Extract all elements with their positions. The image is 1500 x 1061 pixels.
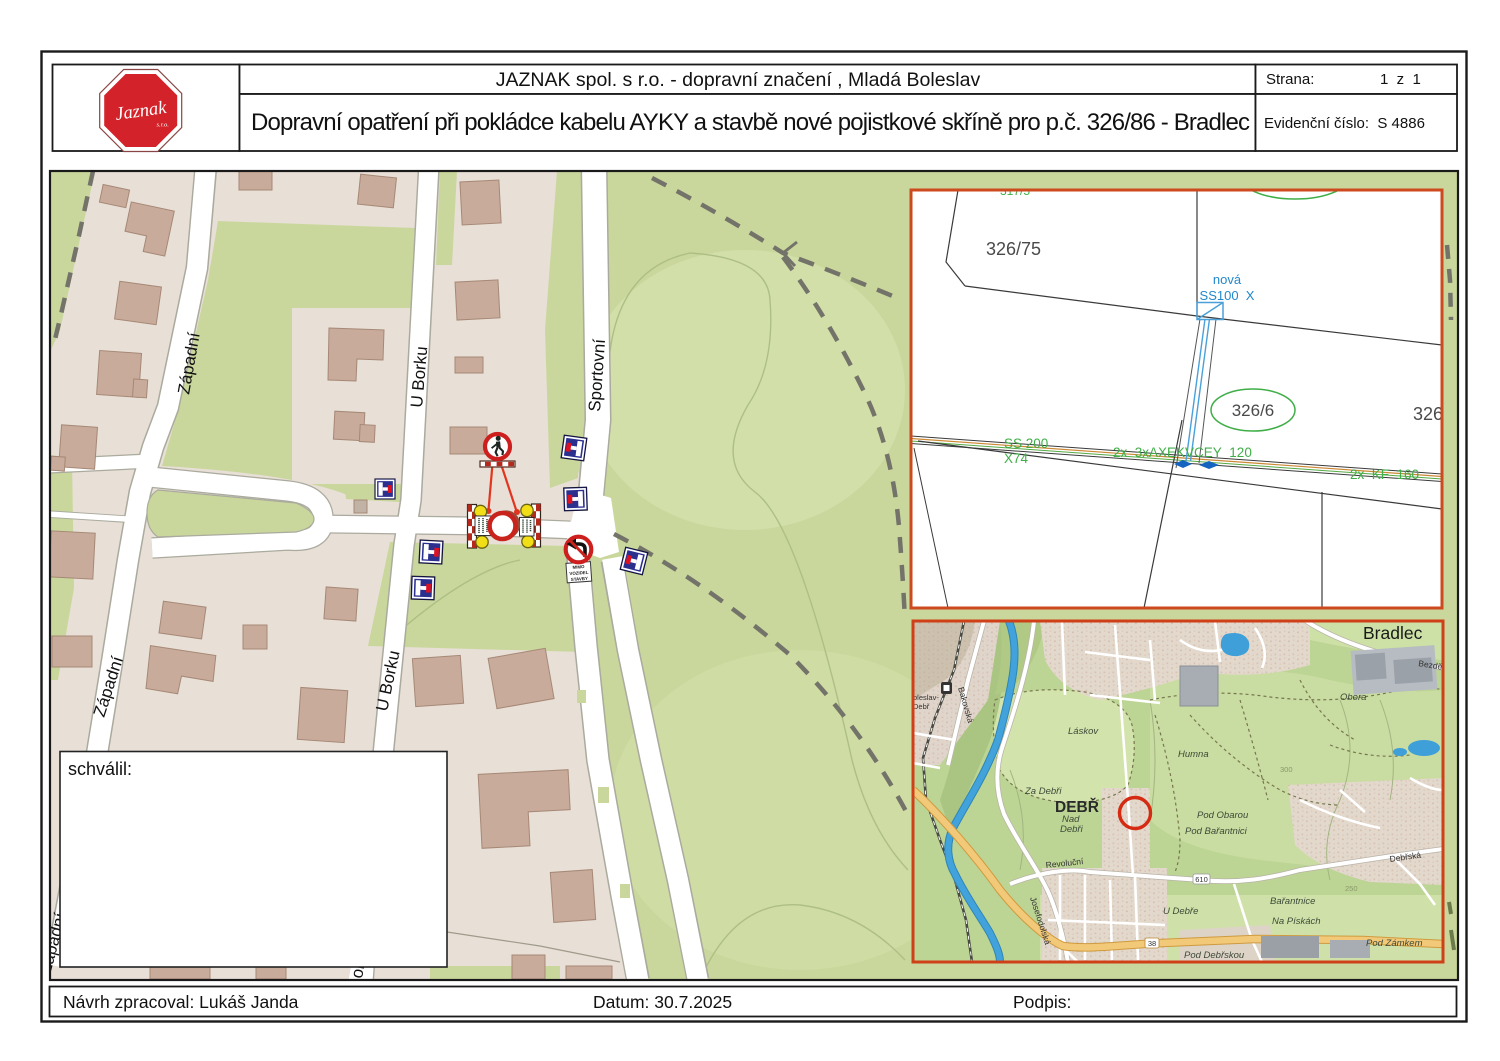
svg-text:Bradlec: Bradlec: [1363, 623, 1423, 643]
svg-text:U Debře: U Debře: [1163, 906, 1198, 917]
svg-text:300: 300: [1280, 765, 1293, 774]
svg-text:Pod Zámkem: Pod Zámkem: [1366, 938, 1423, 949]
svg-text:326/75: 326/75: [986, 239, 1041, 259]
svg-text:nová: nová: [1213, 272, 1242, 287]
svg-text:326/6: 326/6: [1232, 401, 1275, 420]
svg-text:1 z 1: 1 z 1: [1380, 71, 1421, 88]
svg-text:Na Pískách: Na Pískách: [1272, 916, 1321, 927]
svg-text:Bařantnice: Bařantnice: [1270, 896, 1315, 907]
svg-text:38: 38: [1148, 939, 1156, 948]
svg-text:s.r.o.: s.r.o.: [156, 122, 169, 129]
svg-text:schválil:: schválil:: [68, 759, 132, 779]
svg-text:2x 3xAXEKVCEY 120: 2x 3xAXEKVCEY 120: [1113, 445, 1252, 460]
svg-text:JAZNAK spol. s r.o. - dopravní: JAZNAK spol. s r.o. - dopravní značení ,…: [496, 69, 981, 91]
svg-text:MIMO: MIMO: [572, 564, 585, 570]
svg-text:Strana:: Strana:: [1266, 71, 1314, 88]
svg-text:SS 200: SS 200: [1004, 436, 1048, 451]
svg-text:Obora: Obora: [1340, 692, 1366, 703]
svg-text:2x KF 160: 2x KF 160: [1350, 467, 1419, 482]
svg-text:Pod Debřskou: Pod Debřskou: [1184, 950, 1245, 961]
svg-text:Humna: Humna: [1178, 749, 1209, 760]
svg-text:X74: X74: [1004, 451, 1029, 466]
svg-text:SS100 X: SS100 X: [1200, 288, 1255, 303]
svg-text:oleslav-: oleslav-: [913, 693, 939, 702]
svg-text:Debři: Debři: [1060, 824, 1084, 835]
svg-text:Debř: Debř: [913, 702, 930, 711]
svg-text:250: 250: [1345, 884, 1358, 893]
svg-text:Za Debři: Za Debři: [1024, 786, 1062, 797]
svg-text:610: 610: [1195, 875, 1208, 884]
svg-text:Evidenční číslo: S 4886: Evidenční číslo: S 4886: [1264, 115, 1425, 132]
svg-text:Dopravní opatření při pokládce: Dopravní opatření při pokládce kabelu AY…: [251, 109, 1250, 136]
svg-text:Návrh zpracoval: Lukáš Janda: Návrh zpracoval: Lukáš Janda: [63, 992, 299, 1012]
svg-text:Datum: 30.7.2025: Datum: 30.7.2025: [593, 992, 732, 1012]
svg-text:Pod Bařantnici: Pod Bařantnici: [1185, 826, 1248, 837]
svg-text:Pod Obarou: Pod Obarou: [1197, 810, 1249, 821]
svg-text:Podpis:: Podpis:: [1013, 992, 1071, 1012]
svg-text:Láskov: Láskov: [1068, 726, 1099, 737]
